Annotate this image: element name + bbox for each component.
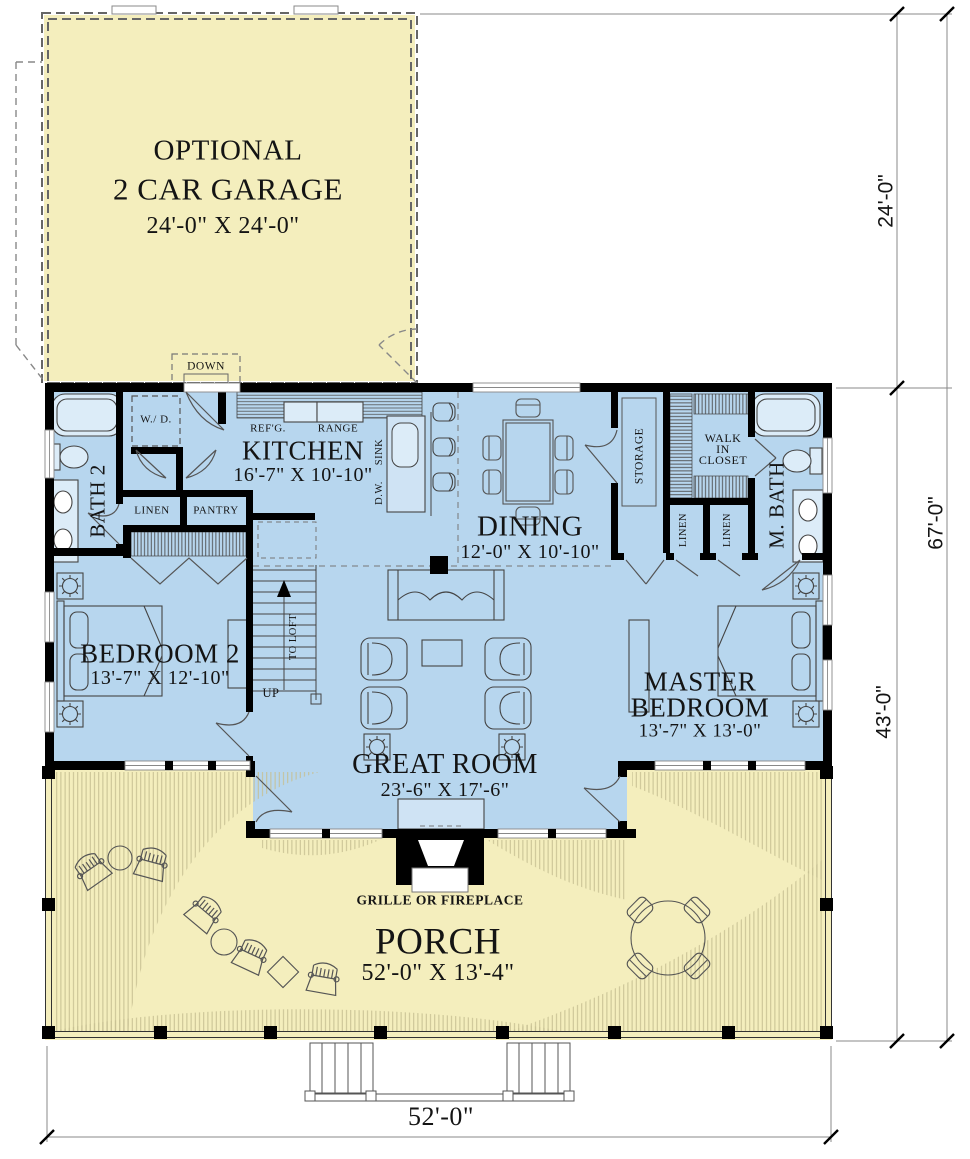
dishwasher-label: D.W. xyxy=(375,481,386,505)
dining-label: DINING xyxy=(477,513,583,542)
dim-overall-depth: 67'-0" xyxy=(926,496,947,550)
kitchen-dims: 16'-7" X 10'-10" xyxy=(233,465,372,485)
bath2-label: BATH 2 xyxy=(88,464,109,538)
wic-label-line3: CLOSET xyxy=(699,454,747,466)
up-label: UP xyxy=(263,687,280,700)
dim-overall-width: 52'-0" xyxy=(408,1104,474,1130)
garage-dims: 24'-0" X 24'-0" xyxy=(146,214,299,238)
refrigerator-label: REF'G. xyxy=(250,424,286,435)
garage-label-line2: 2 CAR GARAGE xyxy=(113,174,343,205)
great-room-dims: 23'-6" X 17'-6" xyxy=(381,780,510,800)
dining-dims: 12'-0" X 10'-10" xyxy=(460,542,599,562)
grille-label: GRILLE OR FIREPLACE xyxy=(356,893,523,907)
linen-master-1-label: LINEN xyxy=(679,513,690,547)
pantry-label: PANTRY xyxy=(193,506,238,517)
range-label: RANGE xyxy=(318,424,358,435)
bedroom2-dims: 13'-7" X 12'-10" xyxy=(90,668,229,688)
fireplace xyxy=(396,826,484,892)
master-bedroom-dims: 13'-7" X 13'-0" xyxy=(639,722,762,741)
bedroom2-closet-rod xyxy=(131,532,246,556)
to-loft-label: TO LOFT xyxy=(289,614,300,660)
garage-label-line1: OPTIONAL xyxy=(154,137,303,166)
washer-dryer-label: W./ D. xyxy=(140,415,172,426)
dim-garage-depth: 24'-0" xyxy=(876,174,897,228)
master-bath-label: M. BATH xyxy=(767,461,788,549)
porch-label: PORCH xyxy=(375,924,501,961)
dim-main-depth: 43'-0" xyxy=(874,685,895,739)
bedroom2-label: BEDROOM 2 xyxy=(80,641,240,668)
storage-label: STORAGE xyxy=(634,428,646,484)
sink-label: SINK xyxy=(375,439,386,466)
down-label: DOWN xyxy=(187,361,225,373)
linen-hall-label: LINEN xyxy=(134,506,170,517)
master-bedroom-label-line1: MASTER xyxy=(644,669,757,696)
porch-dims: 52'-0" X 13'-4" xyxy=(361,961,514,985)
kitchen-label: KITCHEN xyxy=(242,438,364,465)
great-room-label: GREAT ROOM xyxy=(352,751,538,779)
linen-master-2-label: LINEN xyxy=(723,513,734,547)
front-steps xyxy=(305,1043,574,1101)
floor-plan: OPTIONAL 2 CAR GARAGE 24'-0" X 24'-0" KI… xyxy=(0,0,970,1159)
master-bedroom-label-line2: BEDROOM xyxy=(631,695,770,722)
